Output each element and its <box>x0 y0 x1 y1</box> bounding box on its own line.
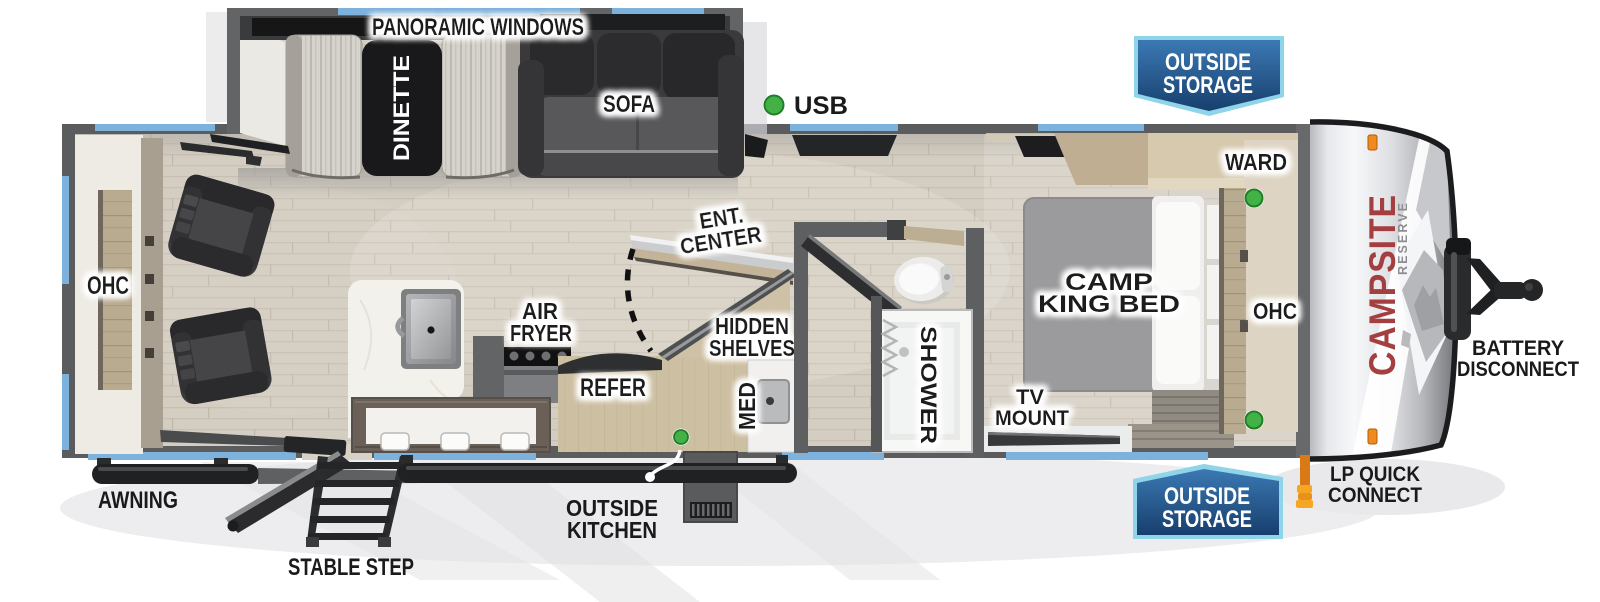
svg-text:STORAGE: STORAGE <box>1163 72 1253 99</box>
svg-text:STORAGE: STORAGE <box>1162 506 1252 533</box>
svg-text:SHOWER: SHOWER <box>916 326 941 444</box>
svg-text:PANORAMIC WINDOWS: PANORAMIC WINDOWS <box>372 14 584 41</box>
svg-text:BATTERY: BATTERY <box>1472 337 1564 360</box>
svg-text:SOFA: SOFA <box>603 91 655 118</box>
svg-text:AWNING: AWNING <box>98 487 178 514</box>
svg-text:DINETTE: DINETTE <box>389 55 414 161</box>
svg-text:REFER: REFER <box>580 374 646 402</box>
svg-text:LP QUICK: LP QUICK <box>1330 463 1420 486</box>
svg-text:RESERVE: RESERVE <box>1396 201 1410 275</box>
svg-text:STABLE STEP: STABLE STEP <box>288 554 414 581</box>
svg-text:OHC: OHC <box>87 272 129 300</box>
svg-text:FRYER: FRYER <box>510 320 572 346</box>
svg-text:KING BED: KING BED <box>1038 291 1180 318</box>
svg-text:OHC: OHC <box>1253 298 1297 324</box>
svg-text:DISCONNECT: DISCONNECT <box>1457 358 1579 381</box>
svg-text:KITCHEN: KITCHEN <box>567 517 657 543</box>
svg-text:USB: USB <box>794 92 848 120</box>
svg-text:SHELVES: SHELVES <box>709 335 795 361</box>
svg-text:TV: TV <box>1016 386 1044 409</box>
svg-text:CONNECT: CONNECT <box>1328 484 1422 507</box>
svg-text:MOUNT: MOUNT <box>995 407 1069 430</box>
svg-text:MED: MED <box>734 382 760 430</box>
svg-text:WARD: WARD <box>1225 149 1287 175</box>
